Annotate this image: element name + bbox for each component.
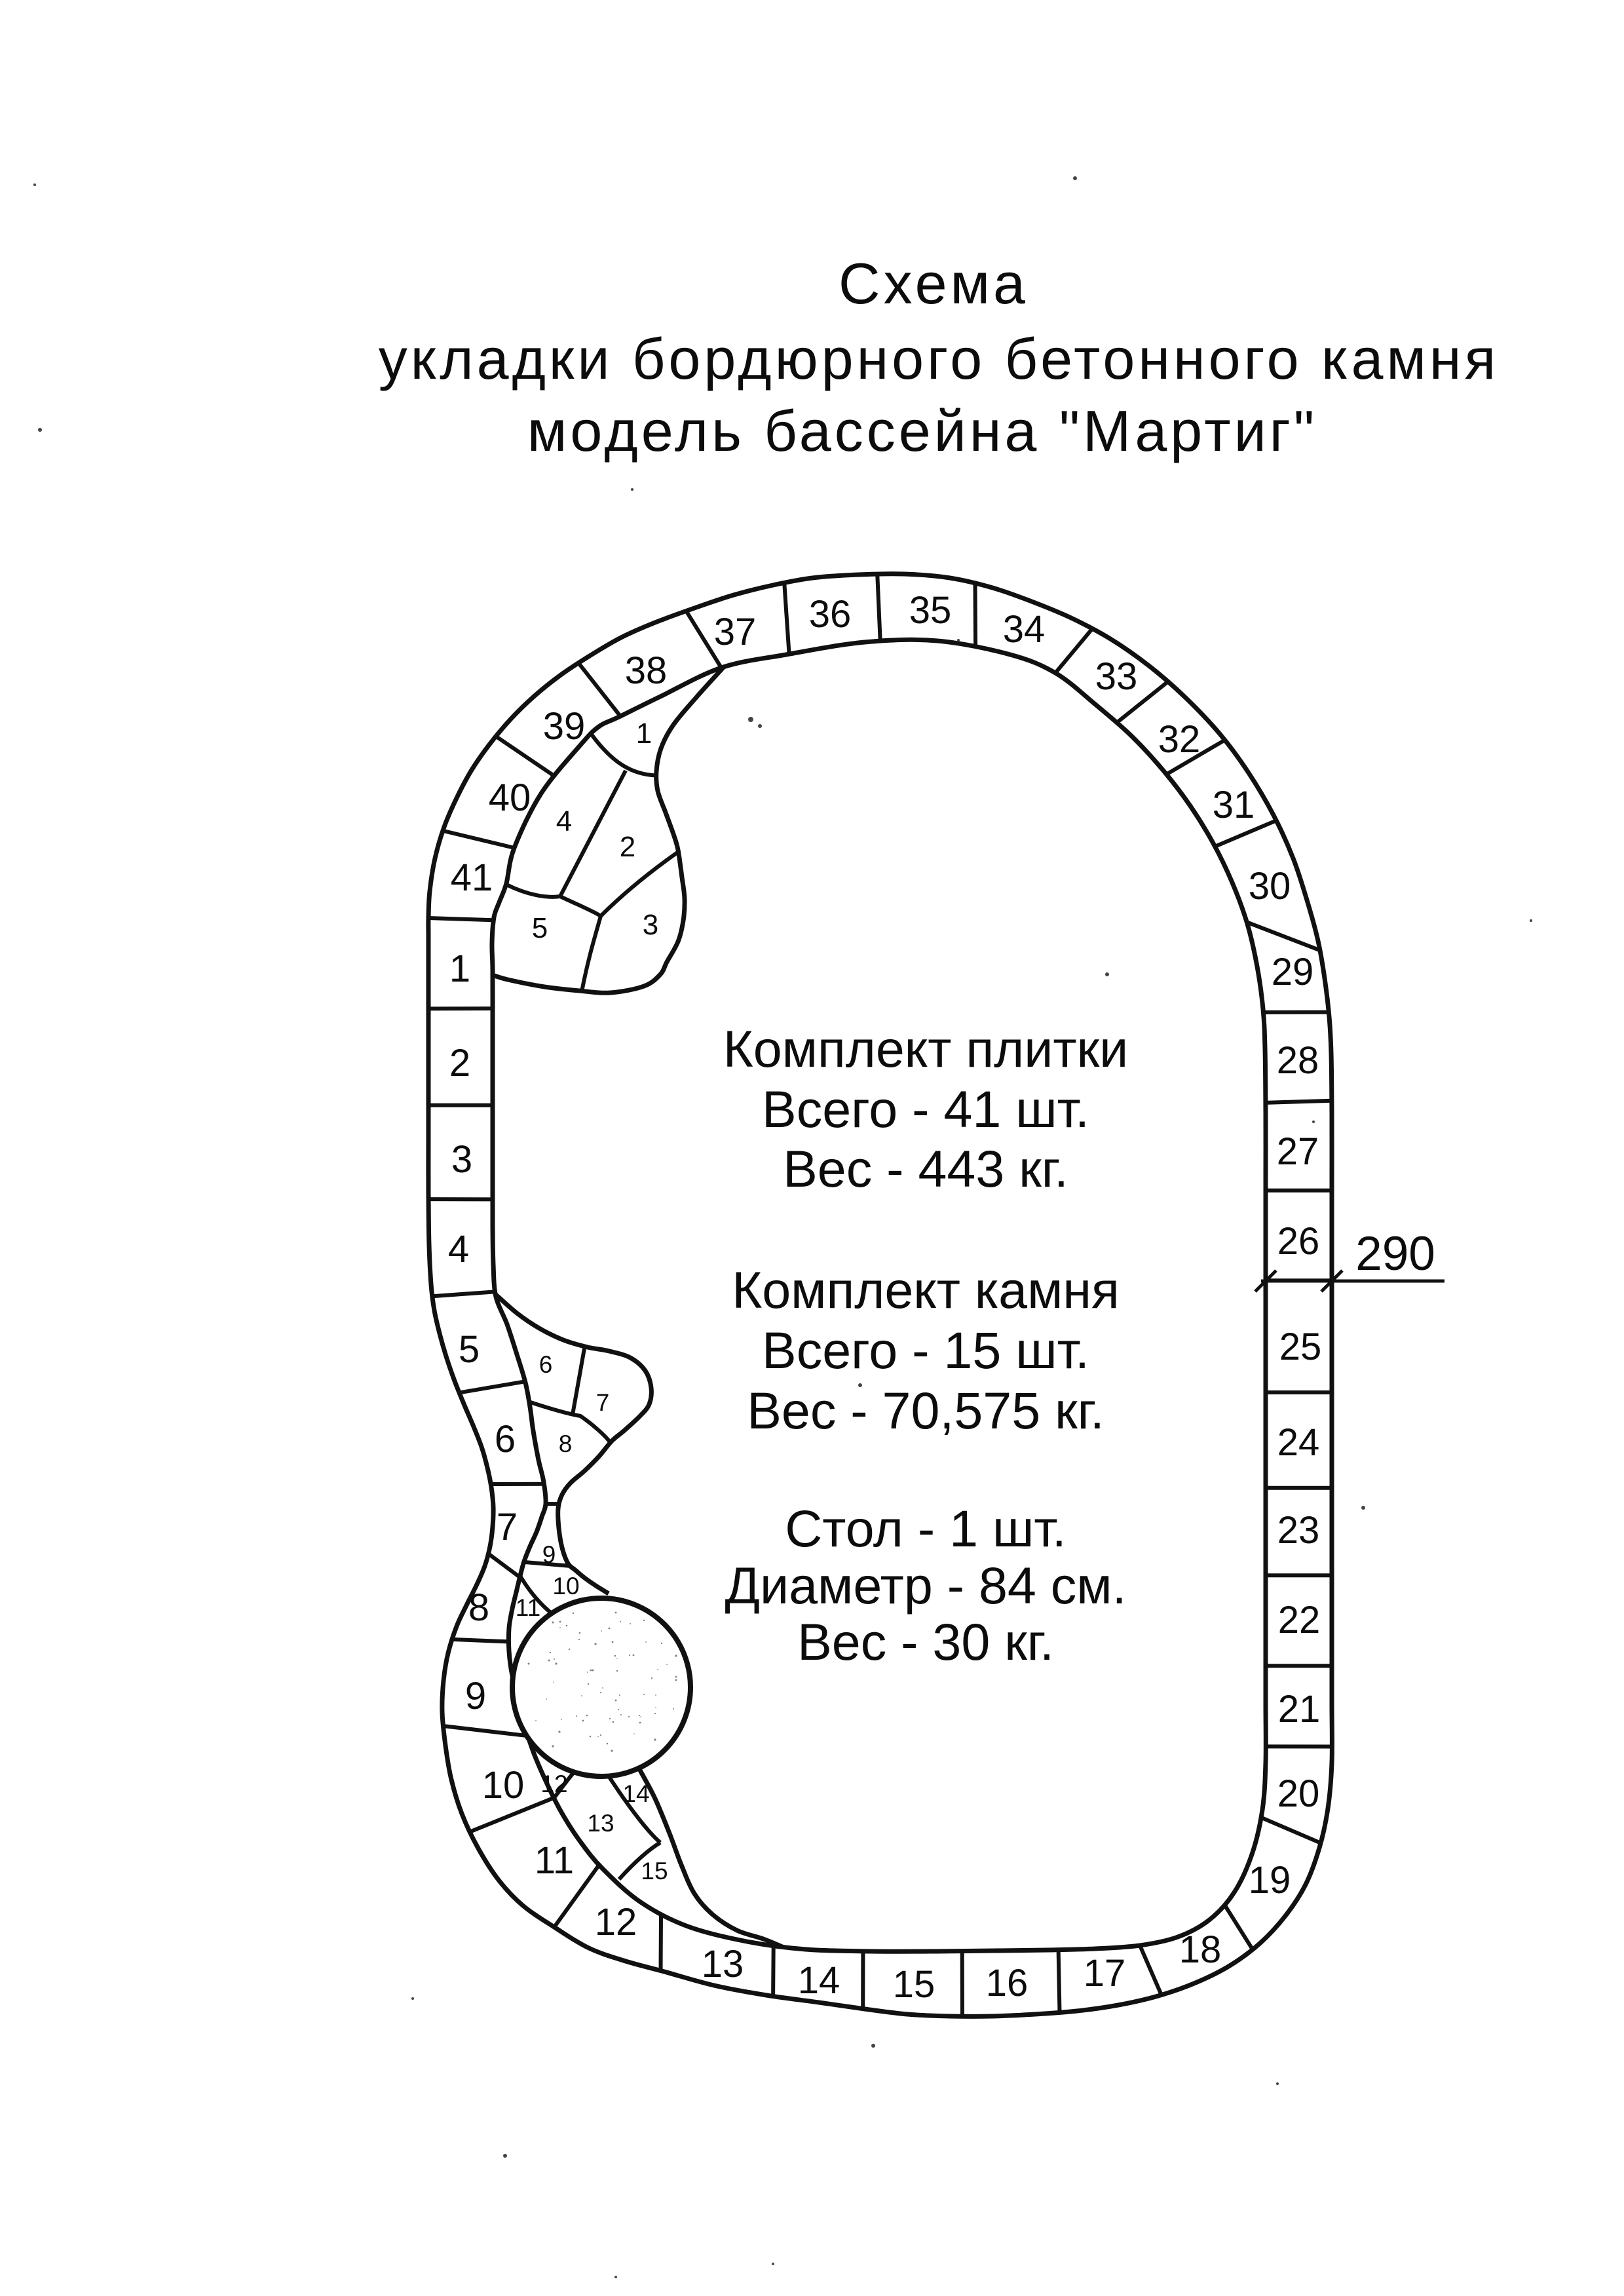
svg-text:20: 20 <box>1277 1772 1320 1815</box>
svg-text:36: 36 <box>809 593 852 636</box>
svg-text:17: 17 <box>1084 1952 1126 1995</box>
svg-text:32: 32 <box>1158 718 1201 761</box>
svg-text:Всего - 41 шт.: Всего - 41 шт. <box>762 1080 1089 1138</box>
svg-text:8: 8 <box>468 1586 489 1629</box>
svg-text:1: 1 <box>449 947 470 990</box>
svg-text:24: 24 <box>1277 1421 1320 1464</box>
svg-text:7: 7 <box>497 1506 518 1548</box>
svg-text:4: 4 <box>448 1228 469 1271</box>
svg-text:18: 18 <box>1179 1928 1222 1971</box>
svg-text:1: 1 <box>636 717 652 750</box>
svg-text:5: 5 <box>459 1328 480 1371</box>
svg-text:Вес - 70,575 кг.: Вес - 70,575 кг. <box>747 1381 1105 1440</box>
svg-text:15: 15 <box>641 1858 668 1885</box>
svg-text:14: 14 <box>798 1959 840 2002</box>
svg-text:8: 8 <box>559 1430 573 1457</box>
svg-text:9: 9 <box>542 1541 556 1568</box>
svg-text:6: 6 <box>495 1418 516 1461</box>
svg-text:16: 16 <box>986 1962 1029 2004</box>
svg-text:Комплект камня: Комплект камня <box>732 1261 1120 1319</box>
svg-text:28: 28 <box>1277 1039 1319 1082</box>
svg-text:укладки бордюрного бетонного к: укладки бордюрного бетонного камня <box>379 326 1499 391</box>
svg-text:Всего - 15 шт.: Всего - 15 шт. <box>762 1321 1089 1379</box>
svg-text:Вес - 443 кг.: Вес - 443 кг. <box>783 1139 1068 1198</box>
svg-text:10: 10 <box>482 1764 525 1807</box>
svg-text:Диаметр - 84 см.: Диаметр - 84 см. <box>725 1556 1126 1615</box>
svg-text:290: 290 <box>1355 1227 1435 1280</box>
svg-text:11: 11 <box>535 1839 574 1882</box>
svg-text:34: 34 <box>1003 608 1046 651</box>
svg-text:4: 4 <box>556 805 572 837</box>
svg-text:7: 7 <box>596 1389 610 1416</box>
svg-text:Вес - 30 кг.: Вес - 30 кг. <box>797 1613 1054 1671</box>
svg-text:3: 3 <box>643 909 658 941</box>
svg-text:30: 30 <box>1249 865 1291 908</box>
svg-text:6: 6 <box>539 1351 553 1378</box>
svg-text:5: 5 <box>532 912 548 944</box>
svg-text:26: 26 <box>1277 1220 1320 1263</box>
svg-text:21: 21 <box>1278 1688 1321 1731</box>
svg-text:15: 15 <box>893 1963 935 2006</box>
svg-text:2: 2 <box>620 831 635 863</box>
svg-text:Стол - 1 шт.: Стол - 1 шт. <box>785 1499 1067 1558</box>
svg-text:40: 40 <box>489 776 531 819</box>
svg-text:13: 13 <box>702 1943 744 1985</box>
svg-text:27: 27 <box>1277 1130 1319 1173</box>
svg-text:25: 25 <box>1279 1326 1322 1368</box>
svg-text:35: 35 <box>909 589 952 632</box>
svg-text:19: 19 <box>1249 1859 1291 1902</box>
svg-text:39: 39 <box>543 705 586 748</box>
svg-text:22: 22 <box>1278 1599 1321 1641</box>
svg-text:23: 23 <box>1277 1509 1320 1552</box>
svg-text:41: 41 <box>451 856 493 899</box>
svg-text:Комплект плитки: Комплект плитки <box>723 1020 1129 1078</box>
svg-text:12: 12 <box>540 1770 567 1797</box>
svg-text:31: 31 <box>1213 784 1255 826</box>
svg-text:модель бассейна "Мартиг": модель бассейна "Мартиг" <box>527 398 1317 463</box>
svg-text:2: 2 <box>449 1042 470 1084</box>
svg-text:3: 3 <box>451 1138 472 1181</box>
svg-text:33: 33 <box>1095 655 1138 698</box>
svg-text:13: 13 <box>587 1810 614 1837</box>
svg-text:12: 12 <box>595 1901 637 1943</box>
svg-text:11: 11 <box>516 1594 540 1621</box>
svg-text:10: 10 <box>552 1573 579 1599</box>
svg-text:38: 38 <box>625 649 668 692</box>
svg-text:9: 9 <box>465 1675 486 1717</box>
svg-text:37: 37 <box>714 611 757 653</box>
svg-text:14: 14 <box>622 1780 649 1807</box>
svg-text:Схема: Схема <box>839 251 1029 316</box>
svg-text:29: 29 <box>1272 951 1314 993</box>
